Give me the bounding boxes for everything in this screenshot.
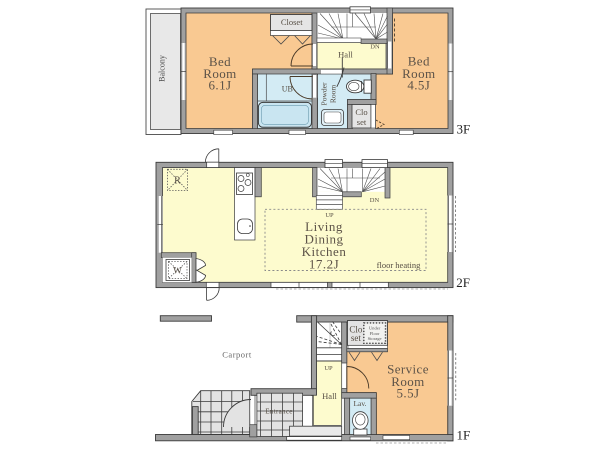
svg-text:Hall: Hall	[322, 391, 337, 401]
svg-text:2F: 2F	[456, 275, 470, 290]
svg-text:5.5J: 5.5J	[397, 385, 420, 400]
svg-text:Entrance: Entrance	[265, 408, 292, 416]
svg-text:floor heating: floor heating	[377, 260, 421, 270]
svg-text:Hall: Hall	[338, 50, 353, 60]
svg-text:UP: UP	[325, 212, 334, 219]
svg-text:3F: 3F	[457, 122, 471, 137]
svg-text:R: R	[174, 176, 181, 187]
svg-text:Floor: Floor	[370, 331, 380, 336]
svg-text:Balcony: Balcony	[158, 55, 167, 82]
svg-text:Room: Room	[329, 85, 338, 104]
svg-text:4.5J: 4.5J	[407, 78, 430, 93]
svg-text:set: set	[351, 333, 361, 343]
svg-text:Storage: Storage	[368, 336, 382, 341]
svg-text:W: W	[173, 267, 182, 277]
svg-text:Carport: Carport	[222, 350, 252, 360]
svg-text:Closet: Closet	[281, 17, 303, 27]
svg-text:6.1J: 6.1J	[209, 78, 232, 93]
svg-text:1F: 1F	[457, 428, 471, 443]
svg-text:set: set	[357, 117, 367, 127]
svg-text:UP: UP	[324, 365, 333, 372]
svg-text:Lav.: Lav.	[353, 399, 366, 408]
svg-text:Powder: Powder	[320, 82, 329, 105]
svg-text:DN: DN	[370, 197, 380, 204]
svg-text:Under: Under	[369, 326, 381, 331]
svg-text:DN: DN	[370, 43, 380, 50]
svg-text:UB: UB	[282, 84, 293, 93]
svg-text:Clo: Clo	[355, 107, 367, 117]
svg-text:17.2J: 17.2J	[309, 256, 339, 271]
